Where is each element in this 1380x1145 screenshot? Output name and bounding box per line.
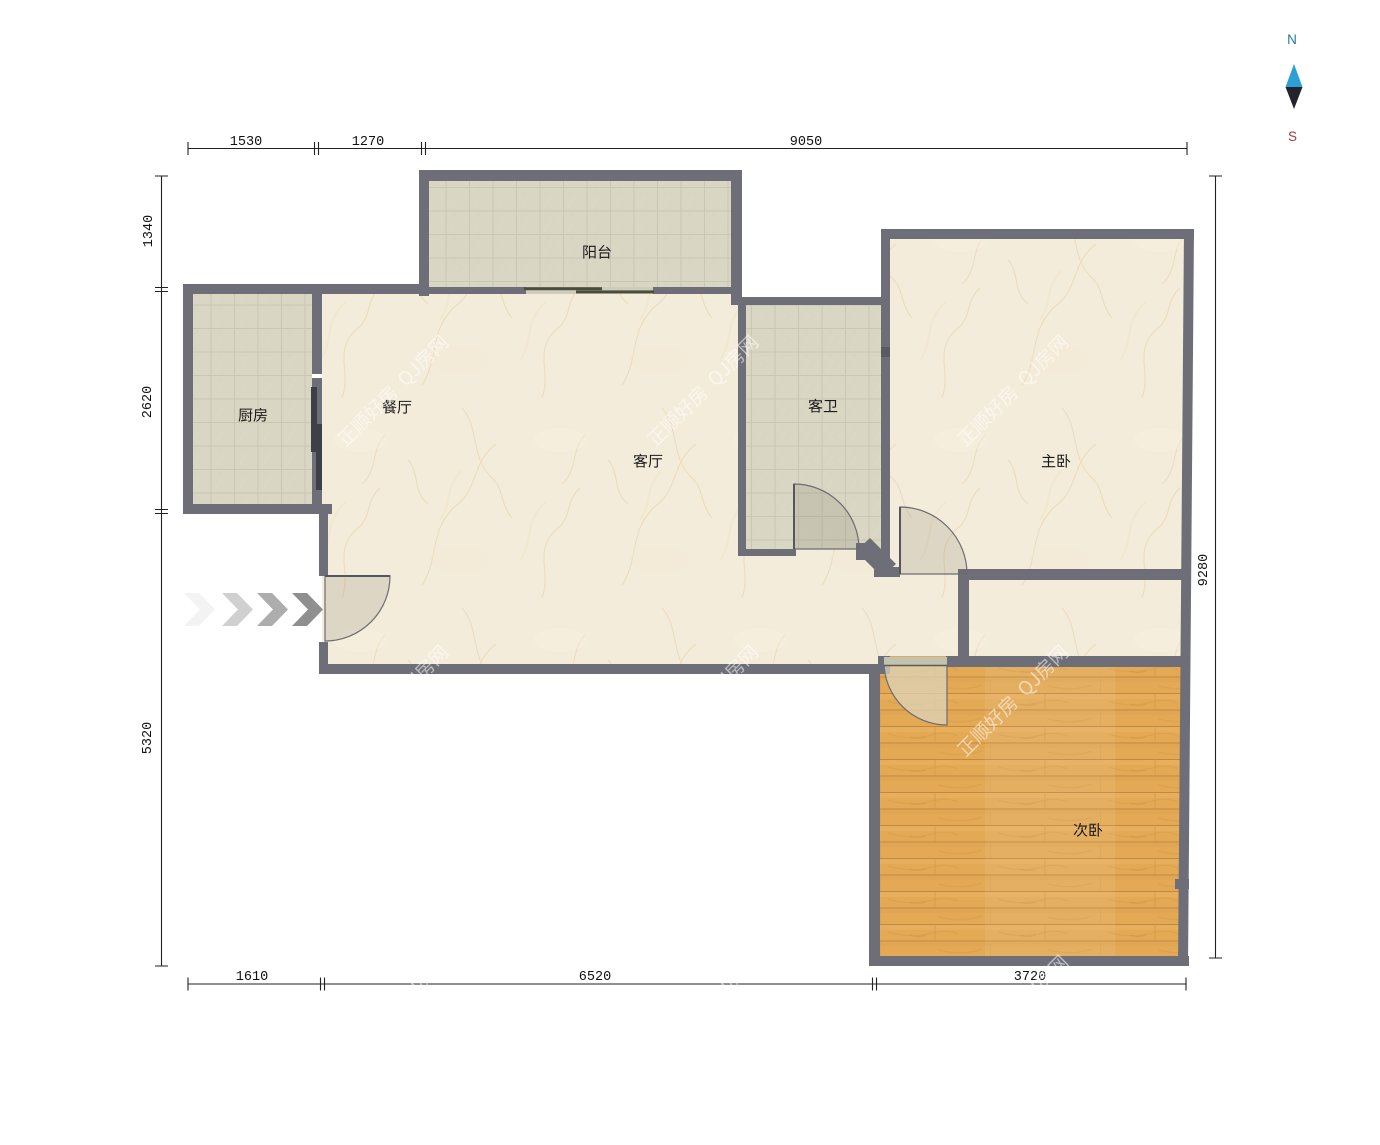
svg-text:1610: 1610	[236, 970, 268, 985]
svg-text:9050: 9050	[790, 135, 822, 150]
svg-text:5320: 5320	[141, 722, 156, 754]
svg-text:S: S	[1288, 129, 1297, 144]
svg-text:2620: 2620	[141, 386, 156, 418]
svg-text:N: N	[1287, 32, 1297, 47]
svg-text:1340: 1340	[142, 215, 157, 247]
svg-text:6520: 6520	[579, 970, 611, 985]
svg-text:9280: 9280	[1197, 554, 1212, 586]
svg-text:1270: 1270	[352, 135, 384, 150]
svg-text:1530: 1530	[230, 135, 262, 150]
